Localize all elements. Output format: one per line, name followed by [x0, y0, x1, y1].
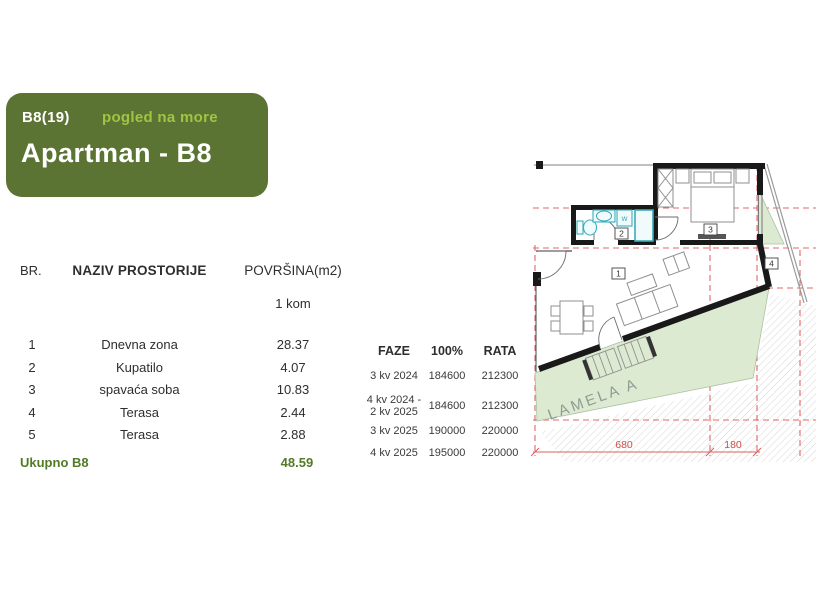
dimension-main: 680 [615, 439, 633, 451]
col-header-rata: RATA [472, 344, 528, 358]
nightstand [736, 169, 749, 183]
room-table-header: BR. NAZIV PROSTORIJE POVRŠINA(m2) [12, 262, 362, 280]
bedroom-furniture [658, 169, 749, 239]
col-header-100: 100% [422, 344, 472, 358]
price-row: 3 kv 2024 184600 212300 [366, 369, 528, 383]
table-row: 2 Kupatilo 4.07 [12, 357, 362, 380]
room-table-body: 1 Dnevna zona 28.37 2 Kupatilo 4.07 3 sp… [12, 334, 362, 447]
unit-header-card: B8(19) pogled na more Apartman - B8 [6, 93, 268, 197]
total-area: 48.59 [232, 453, 362, 473]
chair [551, 321, 560, 331]
chair [551, 306, 560, 316]
pillow [714, 172, 731, 183]
col-header-area: POVRŠINA(m2) [227, 262, 359, 280]
room-label-terrace: 4 [769, 259, 774, 269]
washer-label: w [621, 214, 628, 223]
room-label-bedroom: 3 [708, 225, 713, 235]
sink-basin [597, 211, 612, 221]
table-row: 3 spavaća soba 10.83 [12, 379, 362, 402]
col-header-name: NAZIV PROSTORIJE [52, 262, 227, 280]
toilet-tank [577, 221, 583, 234]
room-label-living: 1 [616, 269, 621, 279]
price-row: 3 kv 2025 190000 220000 [366, 424, 528, 438]
table-row: 5 Terasa 2.88 [12, 424, 362, 447]
dining-table [560, 301, 583, 334]
chair [584, 321, 593, 331]
price-table: FAZE 100% RATA 3 kv 2024 184600 212300 4… [366, 344, 528, 460]
chair [584, 306, 593, 316]
price-row: 4 kv 2025 195000 220000 [366, 446, 528, 460]
price-row: 4 kv 2024 -2 kv 2025 184600 212300 [366, 393, 528, 419]
unit-count-label: 1 kom [227, 296, 359, 312]
unit-count-row: 1 kom [12, 296, 362, 312]
dimension-side: 180 [724, 439, 742, 451]
table-row: 1 Dnevna zona 28.37 [12, 334, 362, 357]
shower [635, 210, 653, 241]
room-label-bath: 2 [619, 229, 624, 239]
table-row: 4 Terasa 2.44 [12, 402, 362, 425]
col-header-faze: FAZE [366, 345, 422, 357]
unit-code: B8(19) [22, 109, 70, 126]
room-table-total-row: Ukupno B8 48.59 [12, 453, 362, 473]
price-table-header: FAZE 100% RATA [366, 344, 528, 358]
wardrobe [658, 169, 673, 207]
dining-set [551, 301, 593, 334]
room-table: BR. NAZIV PROSTORIJE POVRŠINA(m2) 1 kom … [12, 262, 362, 473]
nightstand [676, 169, 689, 183]
total-label: Ukupno B8 [12, 453, 232, 473]
col-header-br: BR. [12, 262, 52, 280]
unit-title: Apartman - B8 [21, 138, 212, 169]
view-note: pogled na more [102, 109, 218, 126]
pillow [694, 172, 711, 183]
floor-plan: w [530, 60, 820, 480]
